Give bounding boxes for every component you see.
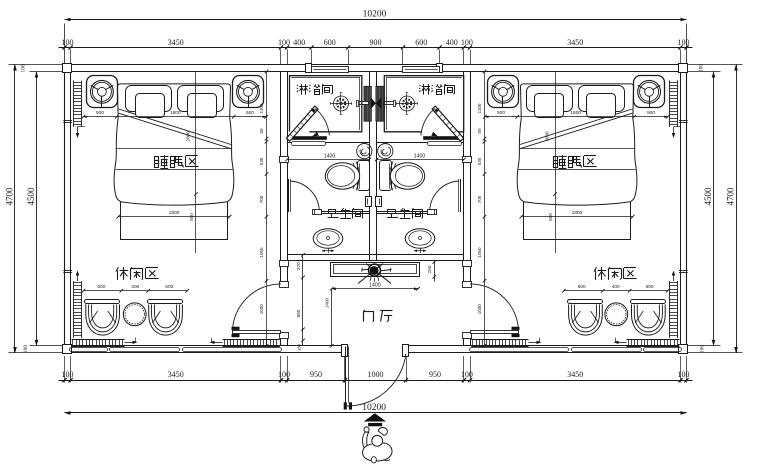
svg-text:600: 600 bbox=[165, 284, 173, 290]
svg-text:10200: 10200 bbox=[363, 10, 387, 20]
svg-text:400: 400 bbox=[293, 38, 305, 47]
svg-text:600: 600 bbox=[548, 213, 553, 221]
svg-text:1800: 1800 bbox=[169, 210, 180, 216]
svg-text:600: 600 bbox=[578, 284, 586, 290]
svg-text:500: 500 bbox=[497, 110, 505, 116]
svg-text:1000: 1000 bbox=[368, 370, 384, 379]
svg-text:1400: 1400 bbox=[369, 283, 381, 289]
svg-text:3450: 3450 bbox=[168, 38, 184, 47]
svg-text:100: 100 bbox=[278, 38, 290, 47]
svg-text:1030: 1030 bbox=[477, 304, 482, 315]
svg-text:2000: 2000 bbox=[545, 131, 550, 142]
svg-text:1050: 1050 bbox=[477, 247, 482, 258]
svg-text:500: 500 bbox=[96, 110, 104, 116]
svg-text:100: 100 bbox=[21, 64, 27, 73]
svg-text:850: 850 bbox=[296, 309, 301, 317]
svg-text:50: 50 bbox=[477, 128, 482, 134]
svg-text:1030: 1030 bbox=[259, 304, 264, 315]
svg-text:100: 100 bbox=[62, 38, 74, 47]
svg-text:900: 900 bbox=[370, 38, 382, 47]
svg-text:1400: 1400 bbox=[414, 153, 426, 159]
svg-text:100: 100 bbox=[278, 370, 290, 379]
svg-text:700: 700 bbox=[477, 195, 482, 203]
svg-text:1800: 1800 bbox=[570, 110, 581, 116]
svg-text:4500: 4500 bbox=[26, 187, 36, 206]
svg-text:250: 250 bbox=[427, 265, 432, 273]
svg-text:1800: 1800 bbox=[170, 110, 181, 116]
svg-text:3450: 3450 bbox=[567, 370, 583, 379]
svg-text:1800: 1800 bbox=[572, 210, 583, 216]
svg-text:100: 100 bbox=[699, 64, 705, 73]
svg-text:1100: 1100 bbox=[259, 103, 264, 113]
svg-text:600: 600 bbox=[646, 284, 654, 290]
svg-text:1050: 1050 bbox=[259, 247, 264, 258]
svg-text:600: 600 bbox=[324, 38, 336, 47]
svg-text:950: 950 bbox=[310, 370, 322, 379]
svg-text:3450: 3450 bbox=[168, 370, 184, 379]
svg-text:1100: 1100 bbox=[477, 103, 482, 113]
svg-text:370: 370 bbox=[296, 262, 301, 270]
svg-text:500: 500 bbox=[246, 110, 254, 116]
svg-text:4700: 4700 bbox=[726, 187, 736, 206]
svg-text:100: 100 bbox=[461, 38, 473, 47]
svg-text:2000: 2000 bbox=[186, 131, 191, 142]
svg-text:530: 530 bbox=[477, 157, 482, 165]
svg-text:600: 600 bbox=[97, 284, 105, 290]
svg-text:500: 500 bbox=[647, 110, 655, 116]
svg-text:400: 400 bbox=[612, 284, 620, 290]
svg-text:3450: 3450 bbox=[567, 38, 583, 47]
svg-text:530: 530 bbox=[259, 157, 264, 165]
svg-text:950: 950 bbox=[429, 370, 441, 379]
svg-text:100: 100 bbox=[678, 38, 690, 47]
svg-text:100: 100 bbox=[23, 345, 29, 354]
svg-text:180: 180 bbox=[296, 343, 301, 351]
svg-text:10200: 10200 bbox=[362, 403, 386, 413]
svg-text:100: 100 bbox=[678, 370, 690, 379]
svg-text:50: 50 bbox=[259, 128, 264, 134]
svg-text:700: 700 bbox=[259, 195, 264, 203]
svg-text:600: 600 bbox=[189, 213, 194, 221]
svg-text:1400: 1400 bbox=[324, 297, 329, 308]
svg-text:4500: 4500 bbox=[703, 187, 713, 206]
svg-text:1400: 1400 bbox=[324, 153, 336, 159]
svg-text:400: 400 bbox=[446, 38, 458, 47]
svg-text:4700: 4700 bbox=[5, 187, 15, 206]
svg-text:400: 400 bbox=[131, 284, 139, 290]
svg-text:100: 100 bbox=[700, 345, 706, 354]
svg-text:100: 100 bbox=[461, 370, 473, 379]
svg-text:100: 100 bbox=[62, 370, 74, 379]
svg-text:600: 600 bbox=[415, 38, 427, 47]
